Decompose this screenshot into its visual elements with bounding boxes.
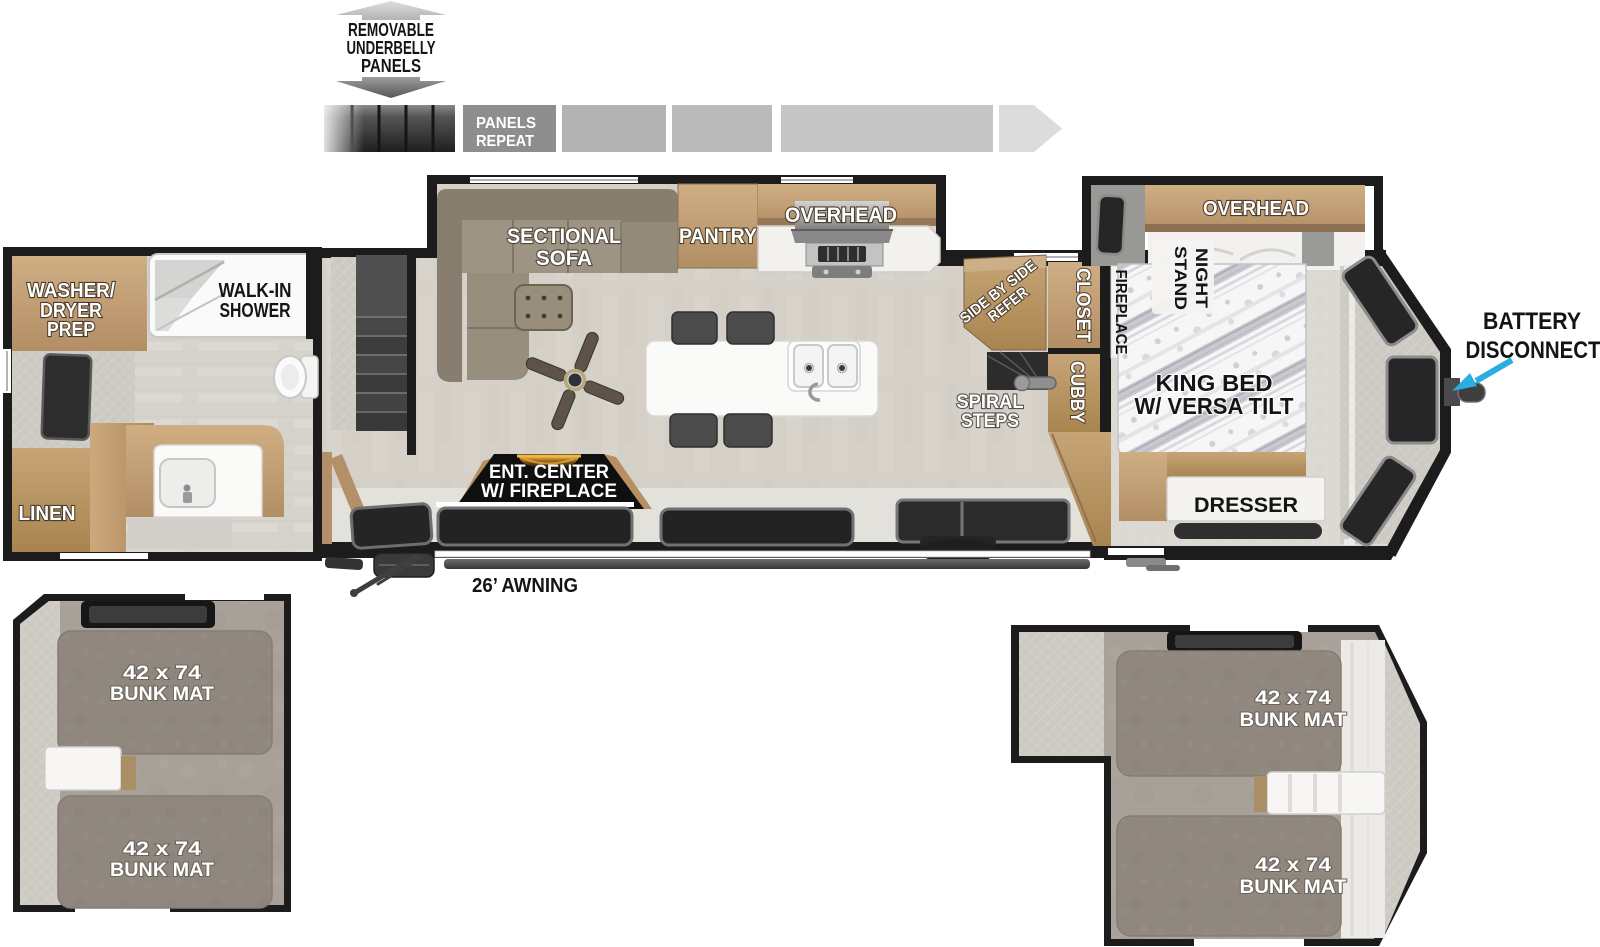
svg-text:DRESSER: DRESSER — [1194, 494, 1298, 517]
svg-text:W/ FIREPLACE: W/ FIREPLACE — [481, 481, 617, 502]
svg-text:PANTRY: PANTRY — [679, 225, 757, 248]
svg-text:CLOSET: CLOSET — [1072, 268, 1093, 342]
svg-text:42 x 74: 42 x 74 — [123, 663, 202, 684]
svg-text:OVERHEAD: OVERHEAD — [785, 204, 897, 227]
svg-text:FIREPLACE: FIREPLACE — [1112, 270, 1129, 355]
svg-text:OVERHEAD: OVERHEAD — [1203, 198, 1309, 220]
svg-text:ENT. CENTER: ENT. CENTER — [489, 462, 609, 483]
svg-text:STEPS: STEPS — [961, 411, 1019, 432]
svg-text:BUNK MAT: BUNK MAT — [1240, 710, 1347, 731]
svg-text:W/ VERSA TILT: W/ VERSA TILT — [1135, 393, 1294, 419]
svg-text:PREP: PREP — [47, 319, 95, 341]
svg-text:SECTIONAL: SECTIONAL — [507, 225, 621, 248]
svg-text:REPEAT: REPEAT — [476, 133, 534, 150]
svg-text:PANELS: PANELS — [476, 115, 536, 132]
svg-text:STAND: STAND — [1171, 246, 1190, 310]
svg-text:BUNK MAT: BUNK MAT — [110, 684, 214, 705]
svg-text:BUNK MAT: BUNK MAT — [1240, 877, 1347, 898]
svg-text:NIGHT: NIGHT — [1192, 248, 1211, 309]
svg-text:UNDERBELLY: UNDERBELLY — [347, 38, 436, 58]
svg-text:BATTERY: BATTERY — [1483, 308, 1581, 335]
svg-text:26’ AWNING: 26’ AWNING — [472, 575, 578, 597]
svg-text:CUBBY: CUBBY — [1066, 361, 1087, 423]
svg-text:SOFA: SOFA — [536, 247, 592, 270]
svg-text:42 x 74: 42 x 74 — [1255, 855, 1332, 876]
svg-text:WALK-IN: WALK-IN — [219, 280, 292, 302]
svg-text:DISCONNECT: DISCONNECT — [1466, 337, 1600, 364]
svg-text:LINEN: LINEN — [19, 503, 76, 525]
svg-text:42 x 74: 42 x 74 — [123, 839, 202, 860]
svg-text:SPIRAL: SPIRAL — [957, 392, 1024, 413]
svg-text:42 x 74: 42 x 74 — [1255, 688, 1332, 709]
svg-text:WASHER/: WASHER/ — [27, 280, 115, 302]
svg-text:BUNK MAT: BUNK MAT — [110, 860, 214, 881]
svg-text:REMOVABLE: REMOVABLE — [348, 20, 434, 40]
svg-text:PANELS: PANELS — [361, 56, 421, 76]
svg-text:SHOWER: SHOWER — [220, 300, 291, 322]
